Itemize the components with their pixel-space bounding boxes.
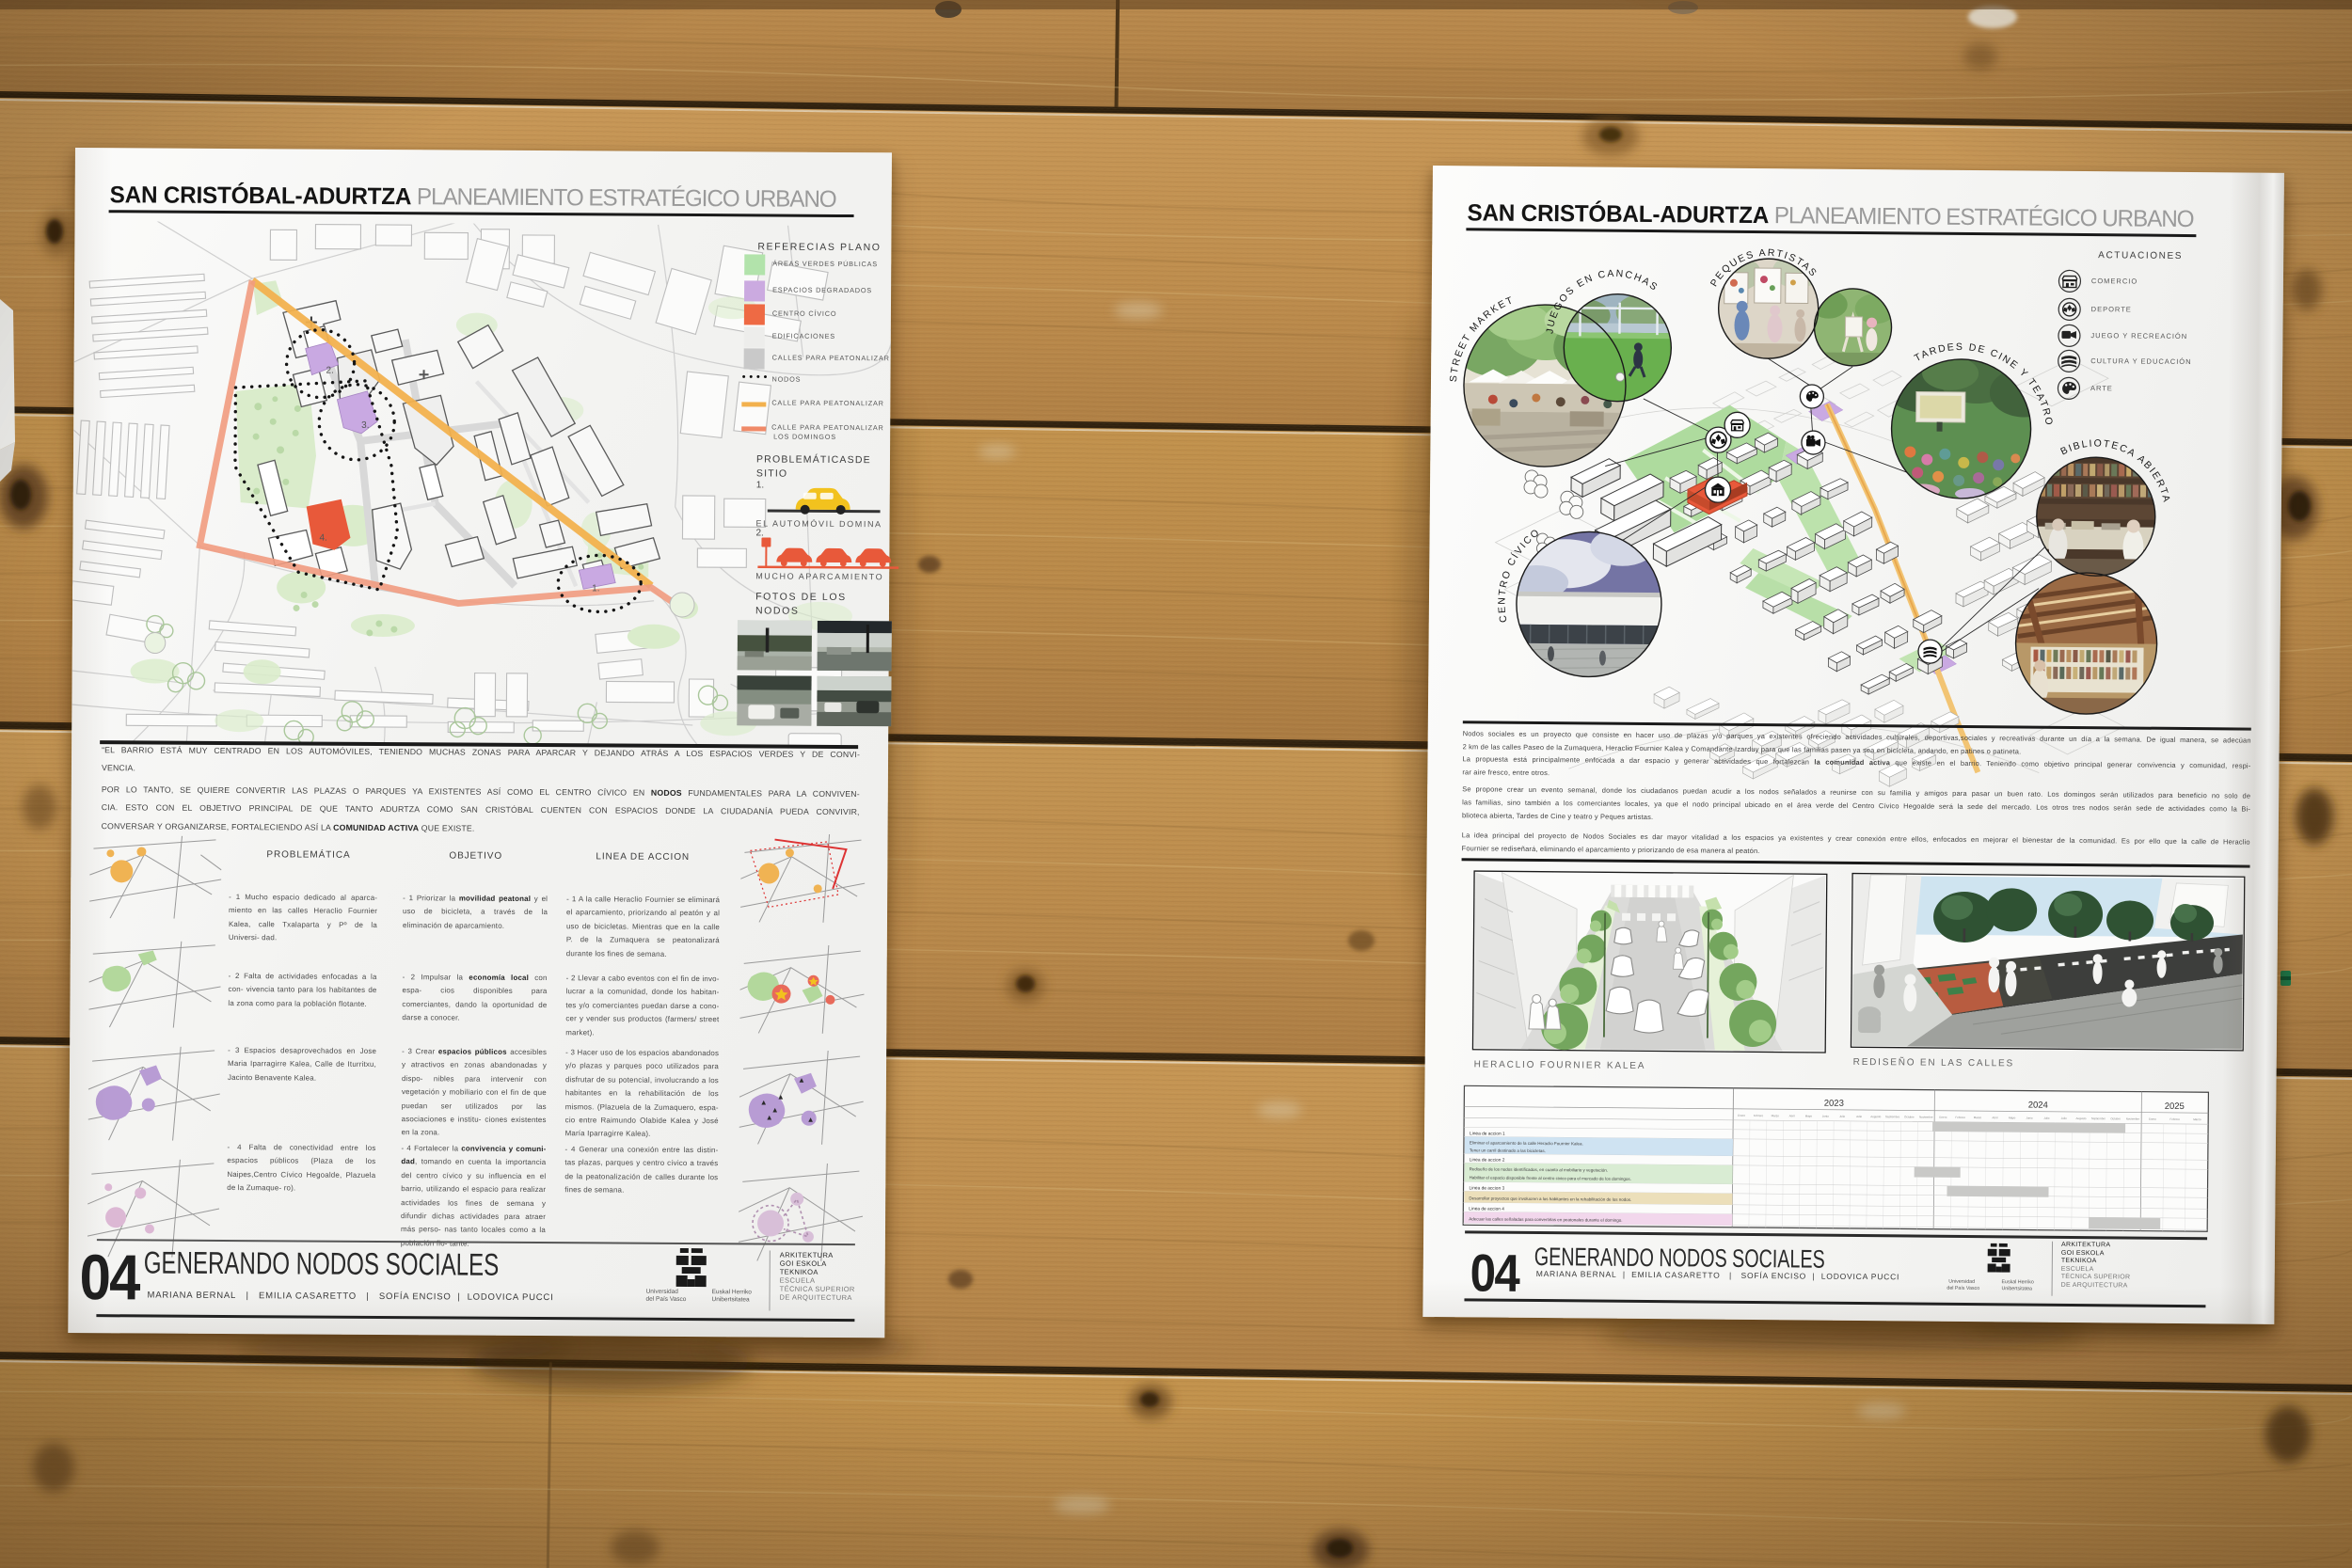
svg-text:Febrero: Febrero — [1955, 1116, 1965, 1119]
svg-text:Universidad: Universidad — [646, 1289, 679, 1295]
svg-text:Septiembre: Septiembre — [1885, 1115, 1900, 1118]
svg-text:Euskal Herriko: Euskal Herriko — [2002, 1279, 2034, 1285]
svg-text:Junio: Junio — [2026, 1117, 2033, 1120]
svg-text:Enero: Enero — [1738, 1114, 1745, 1117]
svg-text:Julio: Julio — [1839, 1115, 1846, 1118]
svg-text:Marzo: Marzo — [2193, 1117, 2201, 1121]
svg-text:Julio: Julio — [2043, 1117, 2050, 1120]
svg-text:▲: ▲ — [760, 1098, 768, 1106]
svg-text:Febrero: Febrero — [2169, 1117, 2180, 1121]
svg-text:Noviembre: Noviembre — [2126, 1117, 2140, 1120]
svg-text:Augusto: Augusto — [1870, 1115, 1881, 1118]
svg-text:4.: 4. — [319, 533, 326, 544]
svg-text:Euskal Herriko: Euskal Herriko — [712, 1289, 753, 1295]
svg-text:2024: 2024 — [2028, 1101, 2048, 1111]
svg-text:Noviembre: Noviembre — [1919, 1116, 1933, 1119]
svg-text:Tener un carril destinado a la: Tener un carril destinado a las biciclet… — [1470, 1148, 1546, 1153]
svg-text:Abril: Abril — [1992, 1116, 1997, 1119]
svg-text:Octubre: Octubre — [2110, 1117, 2121, 1120]
svg-text:Marzo: Marzo — [1974, 1116, 1982, 1119]
svg-text:Febrero: Febrero — [1754, 1114, 1764, 1117]
svg-text:▲: ▲ — [798, 1076, 805, 1085]
svg-text:▲: ▲ — [807, 1116, 815, 1124]
svg-text:Linea de accion 3: Linea de accion 3 — [1469, 1185, 1504, 1191]
svg-text:Universidad: Universidad — [1948, 1279, 1975, 1285]
svg-text:del País Vasco: del País Vasco — [646, 1296, 687, 1303]
svg-text:Linea de accion 1: Linea de accion 1 — [1470, 1131, 1505, 1136]
svg-text:Junio: Junio — [1822, 1115, 1830, 1118]
svg-text:▲: ▲ — [766, 1114, 773, 1122]
svg-text:Enero: Enero — [2149, 1117, 2156, 1121]
svg-text:Linea de accion 4: Linea de accion 4 — [1469, 1206, 1504, 1212]
svg-text:Augusto: Augusto — [2075, 1117, 2086, 1120]
svg-text:Enero: Enero — [1939, 1116, 1947, 1119]
svg-text:Octubre: Octubre — [1904, 1115, 1915, 1118]
svg-text:Mayo: Mayo — [1805, 1114, 1813, 1117]
svg-text:2.: 2. — [326, 366, 334, 376]
svg-text:1.: 1. — [592, 583, 599, 594]
svg-text:Marzo: Marzo — [1772, 1114, 1780, 1117]
svg-text:Septiembre: Septiembre — [2091, 1117, 2106, 1120]
svg-text:Unibertsitatea: Unibertsitatea — [712, 1296, 751, 1303]
svg-text:Julio: Julio — [2061, 1117, 2068, 1120]
svg-text:Unibertsitatea: Unibertsitatea — [2001, 1286, 2032, 1291]
svg-text:del País Vasco: del País Vasco — [1947, 1286, 1979, 1291]
svg-text:2025: 2025 — [2165, 1101, 2185, 1112]
svg-text:3.: 3. — [361, 420, 369, 431]
svg-text:2023: 2023 — [1824, 1099, 1844, 1109]
svg-text:Linea de accion 2: Linea de accion 2 — [1470, 1157, 1505, 1163]
svg-text:Julio: Julio — [1856, 1115, 1863, 1118]
svg-text:Mayo: Mayo — [2009, 1116, 2016, 1119]
svg-text:Abril: Abril — [1789, 1114, 1795, 1117]
svg-text:▲: ▲ — [777, 1093, 785, 1101]
svg-text:Eliminar el aparcamiento de la: Eliminar el aparcamiento de la calle Her… — [1470, 1140, 1583, 1146]
